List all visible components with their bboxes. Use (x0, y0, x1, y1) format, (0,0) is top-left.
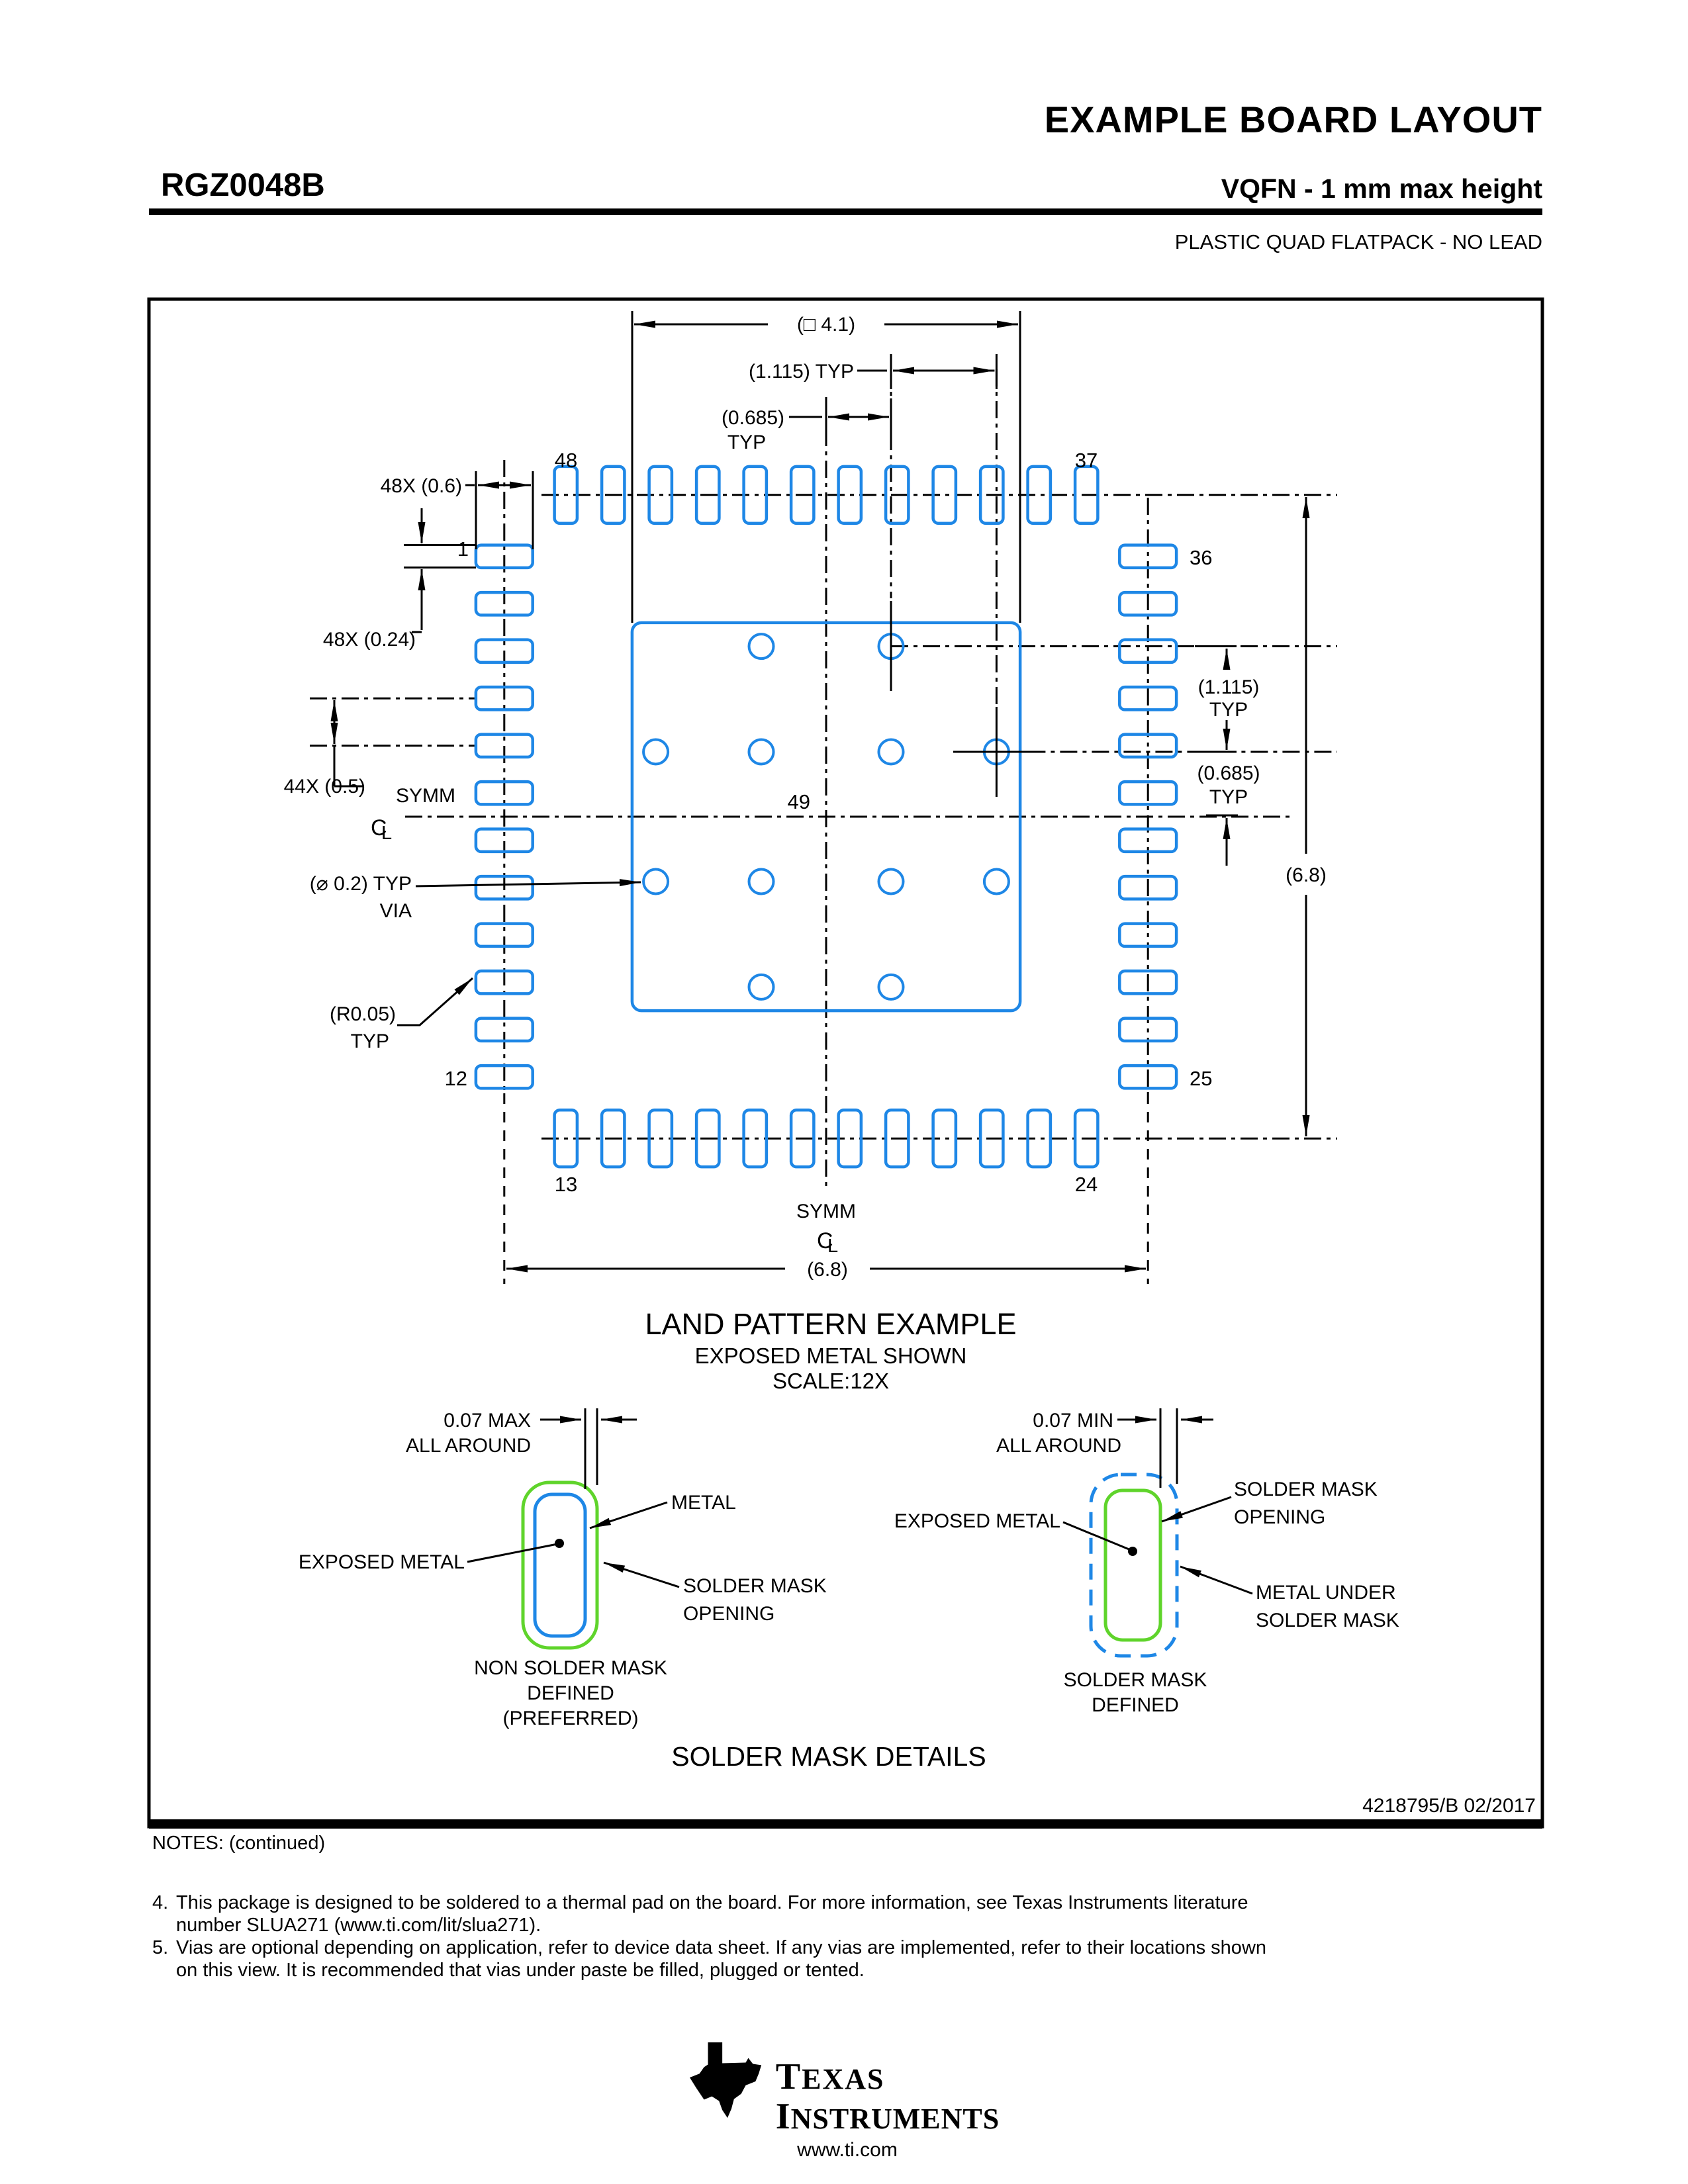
dim-pad-square: (□ 4.1) (797, 314, 855, 336)
note-4-line-1: This package is designed to be soldered … (176, 1891, 1248, 1914)
doc-number: 4218795/B 02/2017 (1362, 1795, 1536, 1817)
drawing-labels: (□ 4.1) (1.115) TYP (0.685) TYP 48X (0.6… (284, 314, 1327, 1281)
nsmd-smo-label-2: OPENING (683, 1603, 774, 1625)
nsmd-caption-3: (PREFERRED) (502, 1707, 638, 1729)
dim-0685-top: (0.685) (722, 407, 784, 429)
symm-bottom-label: SYMM (796, 1201, 856, 1222)
nsmd-caption-1: NON SOLDER MASK (474, 1657, 667, 1679)
via-dia-label: (⌀ 0.2) TYP (310, 873, 412, 895)
thermal-via-7 (643, 870, 668, 894)
smd-detail: 0.07 MIN ALL AROUND SOLDER MASK OPENING … (894, 1408, 1399, 1716)
radius-typ: TYP (351, 1030, 389, 1052)
nsmd-detail: 0.07 MAX ALL AROUND METAL EXPOSED METAL … (299, 1408, 827, 1729)
dimension-arrows (334, 324, 1306, 1269)
pin-13: 13 (555, 1173, 577, 1196)
via-crosshairs (891, 601, 1238, 815)
ti-brand-texas: TEXAS (776, 2058, 1000, 2095)
centerlines (310, 369, 1337, 1284)
land-pattern-captions: LAND PATTERN EXAMPLE EXPOSED METAL SHOWN… (645, 1307, 1017, 1393)
dim-44x05: 44X (0.5) (284, 776, 365, 797)
smd-smo-label-2: OPENING (1234, 1506, 1325, 1528)
dim-48x06: 48X (0.6) (381, 475, 462, 497)
datasheet-page: EXAMPLE BOARD LAYOUT RGZ0048B VQFN - 1 m… (0, 0, 1688, 2184)
dim-68-bottom: (6.8) (807, 1259, 848, 1281)
note-4-number: 4. (152, 1891, 176, 1936)
nsmd-exposed-metal-label: EXPOSED METAL (299, 1551, 465, 1573)
note-5: 5. Vias are optional depending on applic… (152, 1936, 1516, 1981)
centerline-symbol-bottom: C L (817, 1228, 838, 1257)
note-5-number: 5. (152, 1936, 176, 1981)
smd-mus-label-2: SOLDER MASK (1256, 1610, 1399, 1631)
smd-caption-1: SOLDER MASK (1064, 1669, 1207, 1691)
thermal-via-12 (879, 975, 904, 999)
pin-12: 12 (445, 1067, 467, 1090)
dim-1115-right-typ: TYP (1209, 699, 1248, 721)
dim-68-right: (6.8) (1286, 864, 1327, 886)
note-4: 4. This package is designed to be solder… (152, 1891, 1516, 1936)
svg-text:L: L (827, 1236, 838, 1257)
pin-48: 48 (555, 449, 577, 472)
thermal-via-11 (749, 975, 774, 999)
land-pattern-sub1: EXPOSED METAL SHOWN (695, 1343, 967, 1368)
nsmd-caption-2: DEFINED (527, 1682, 614, 1704)
thermal-via-4 (749, 740, 774, 764)
nsmd-metal-shape (535, 1494, 585, 1636)
note-4-line-2: number SLUA271 (www.ti.com/lit/slua271). (176, 1914, 1248, 1936)
svg-text:L: L (381, 823, 392, 844)
thermal-via-1 (749, 634, 774, 659)
smd-caption-2: DEFINED (1092, 1694, 1179, 1716)
nsmd-all-around: ALL AROUND (406, 1435, 531, 1457)
nsmd-smo-label-1: SOLDER MASK (683, 1575, 827, 1597)
symm-left-label: SYMM (396, 785, 455, 807)
land-pattern-sub2: SCALE:12X (773, 1369, 889, 1393)
thermal-via-8 (749, 870, 774, 894)
thermal-via-10 (984, 870, 1009, 894)
dim-0685-right-typ: TYP (1209, 786, 1248, 808)
note-5-line-1: Vias are optional depending on applicati… (176, 1936, 1266, 1959)
land-pattern-title: LAND PATTERN EXAMPLE (645, 1307, 1017, 1341)
smd-smo-label-1: SOLDER MASK (1234, 1479, 1378, 1500)
smd-exposed-metal-label: EXPOSED METAL (894, 1510, 1060, 1532)
smd-all-around: ALL AROUND (996, 1435, 1121, 1457)
thermal-via-3 (643, 740, 668, 764)
notes-section: NOTES: (continued) 4. This package is de… (152, 1832, 1516, 1981)
nsmd-gap-label: 0.07 MAX (444, 1410, 531, 1432)
dim-48x024: 48X (0.24) (323, 629, 416, 651)
dim-0685-top-typ: TYP (727, 432, 766, 453)
ti-footer: ti TEXAS INSTRUMENTS www.ti.com (0, 2041, 1688, 2161)
ti-brand-instruments: INSTRUMENTS (776, 2098, 1000, 2135)
centerline-symbol-left: C L (371, 815, 392, 844)
pin-49: 49 (788, 790, 810, 813)
pin-1: 1 (457, 537, 469, 561)
dim-1115-top: (1.115) TYP (749, 361, 854, 383)
smd-mus-label-1: METAL UNDER (1256, 1582, 1396, 1604)
solder-mask-details-title: SOLDER MASK DETAILS (671, 1741, 986, 1772)
smd-gap-label: 0.07 MIN (1033, 1410, 1113, 1432)
ti-logo-icon: ti (688, 2041, 767, 2123)
notes-heading: NOTES: (continued) (152, 1832, 1516, 1854)
pin-36: 36 (1190, 546, 1212, 569)
pin-37: 37 (1075, 449, 1098, 472)
thermal-via-9 (879, 870, 904, 894)
extension-lines (334, 311, 1227, 866)
smd-solder-mask-opening-shape (1105, 1490, 1160, 1640)
note-5-line-2: on this view. It is recommended that via… (176, 1959, 1266, 1981)
pin-25: 25 (1190, 1067, 1212, 1090)
radius-label: (R0.05) (330, 1003, 396, 1025)
thermal-via-5 (879, 740, 904, 764)
dim-1115-right: (1.115) (1198, 676, 1260, 698)
ti-url: www.ti.com (797, 2139, 898, 2161)
pin-24: 24 (1075, 1173, 1098, 1196)
dim-0685-right: (0.685) (1197, 762, 1260, 784)
via-word-label: VIA (380, 900, 412, 922)
nsmd-metal-label: METAL (671, 1492, 736, 1514)
